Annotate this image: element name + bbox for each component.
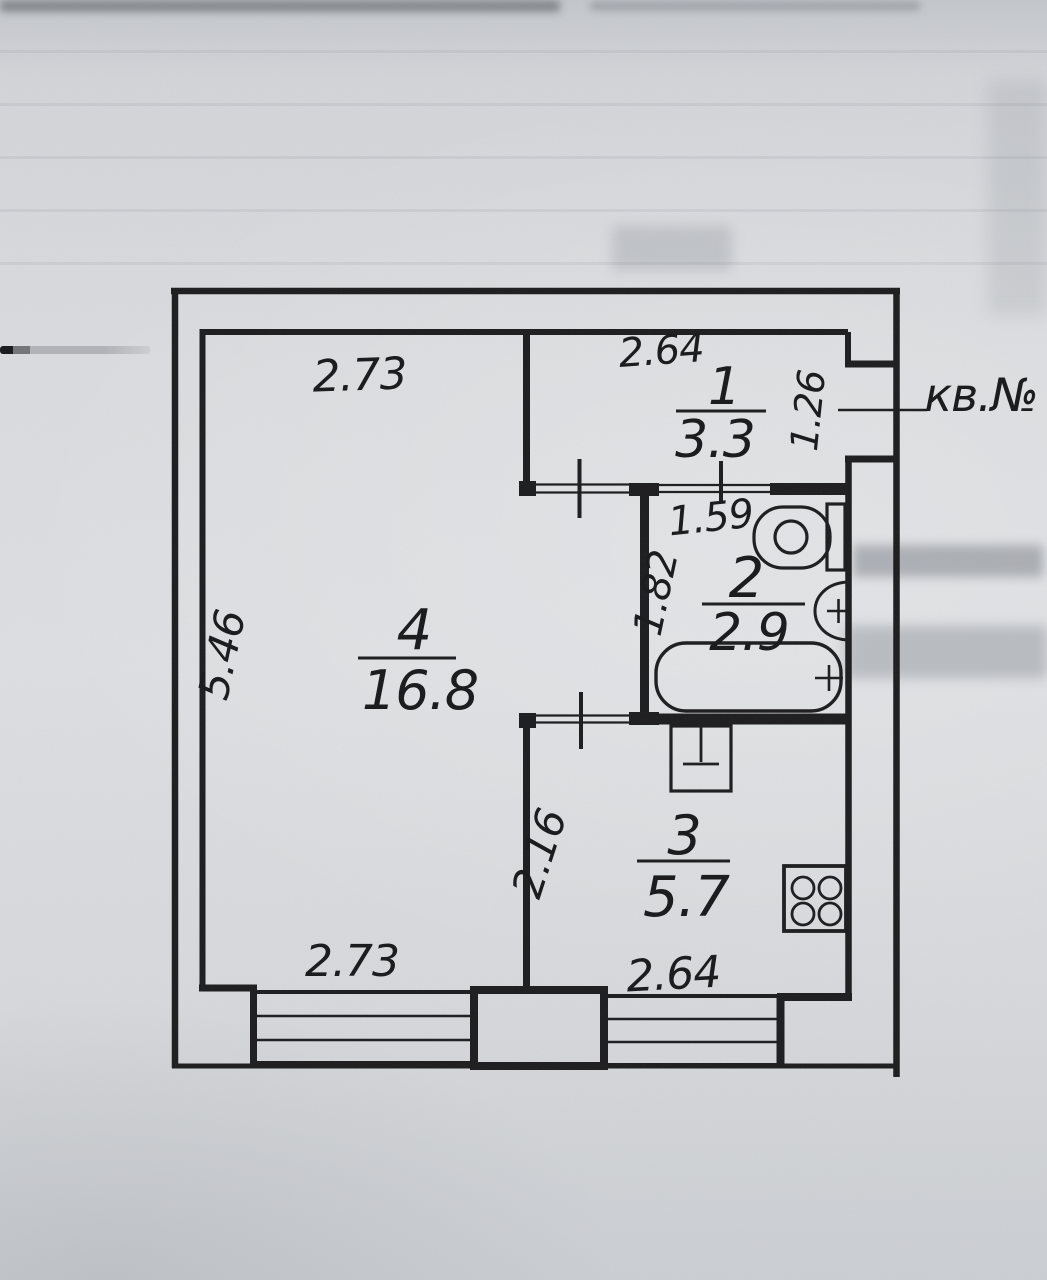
floor-plan-drawing: 2.73 2.64 1 3.3 1.26 кв.№ 1.59 1.82 2 2.… (0, 0, 1047, 1280)
paper-grain-overlay (0, 0, 1047, 1280)
scanned-floor-plan-page: 2.73 2.64 1 3.3 1.26 кв.№ 1.59 1.82 2 2.… (0, 0, 1047, 1280)
